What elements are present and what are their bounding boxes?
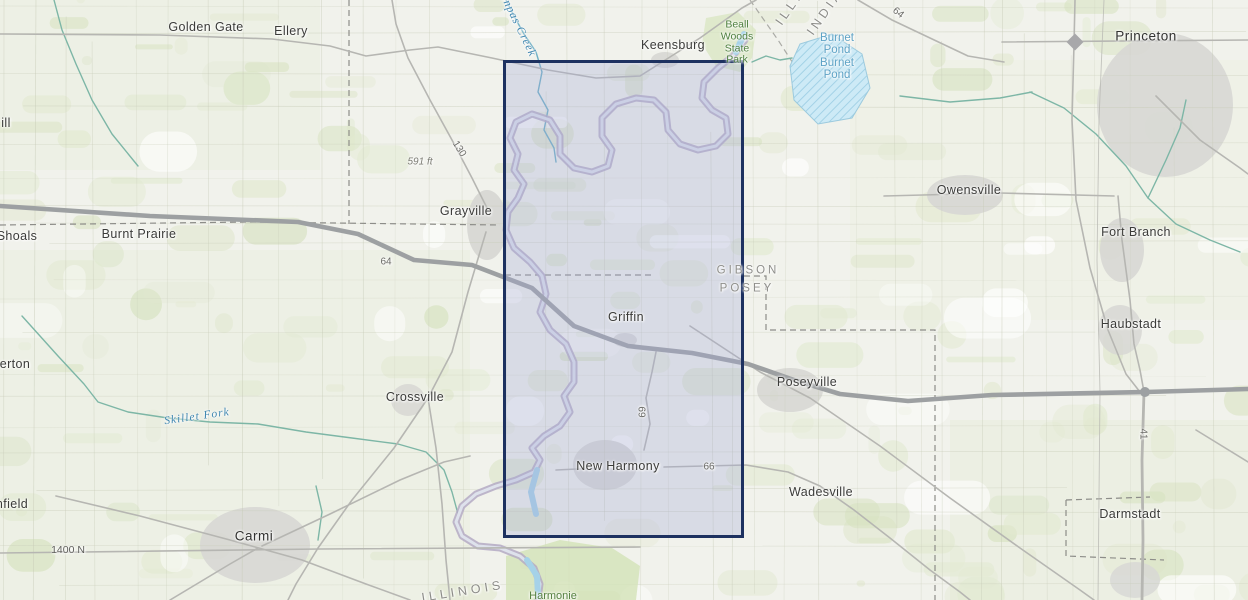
selection-rectangle[interactable] [503, 60, 744, 538]
interchange-diamond [1067, 34, 1084, 51]
interchange-dot [1140, 387, 1150, 397]
map-canvas[interactable]: illGolden GateElleryKeensburgBeall Woods… [0, 0, 1248, 600]
